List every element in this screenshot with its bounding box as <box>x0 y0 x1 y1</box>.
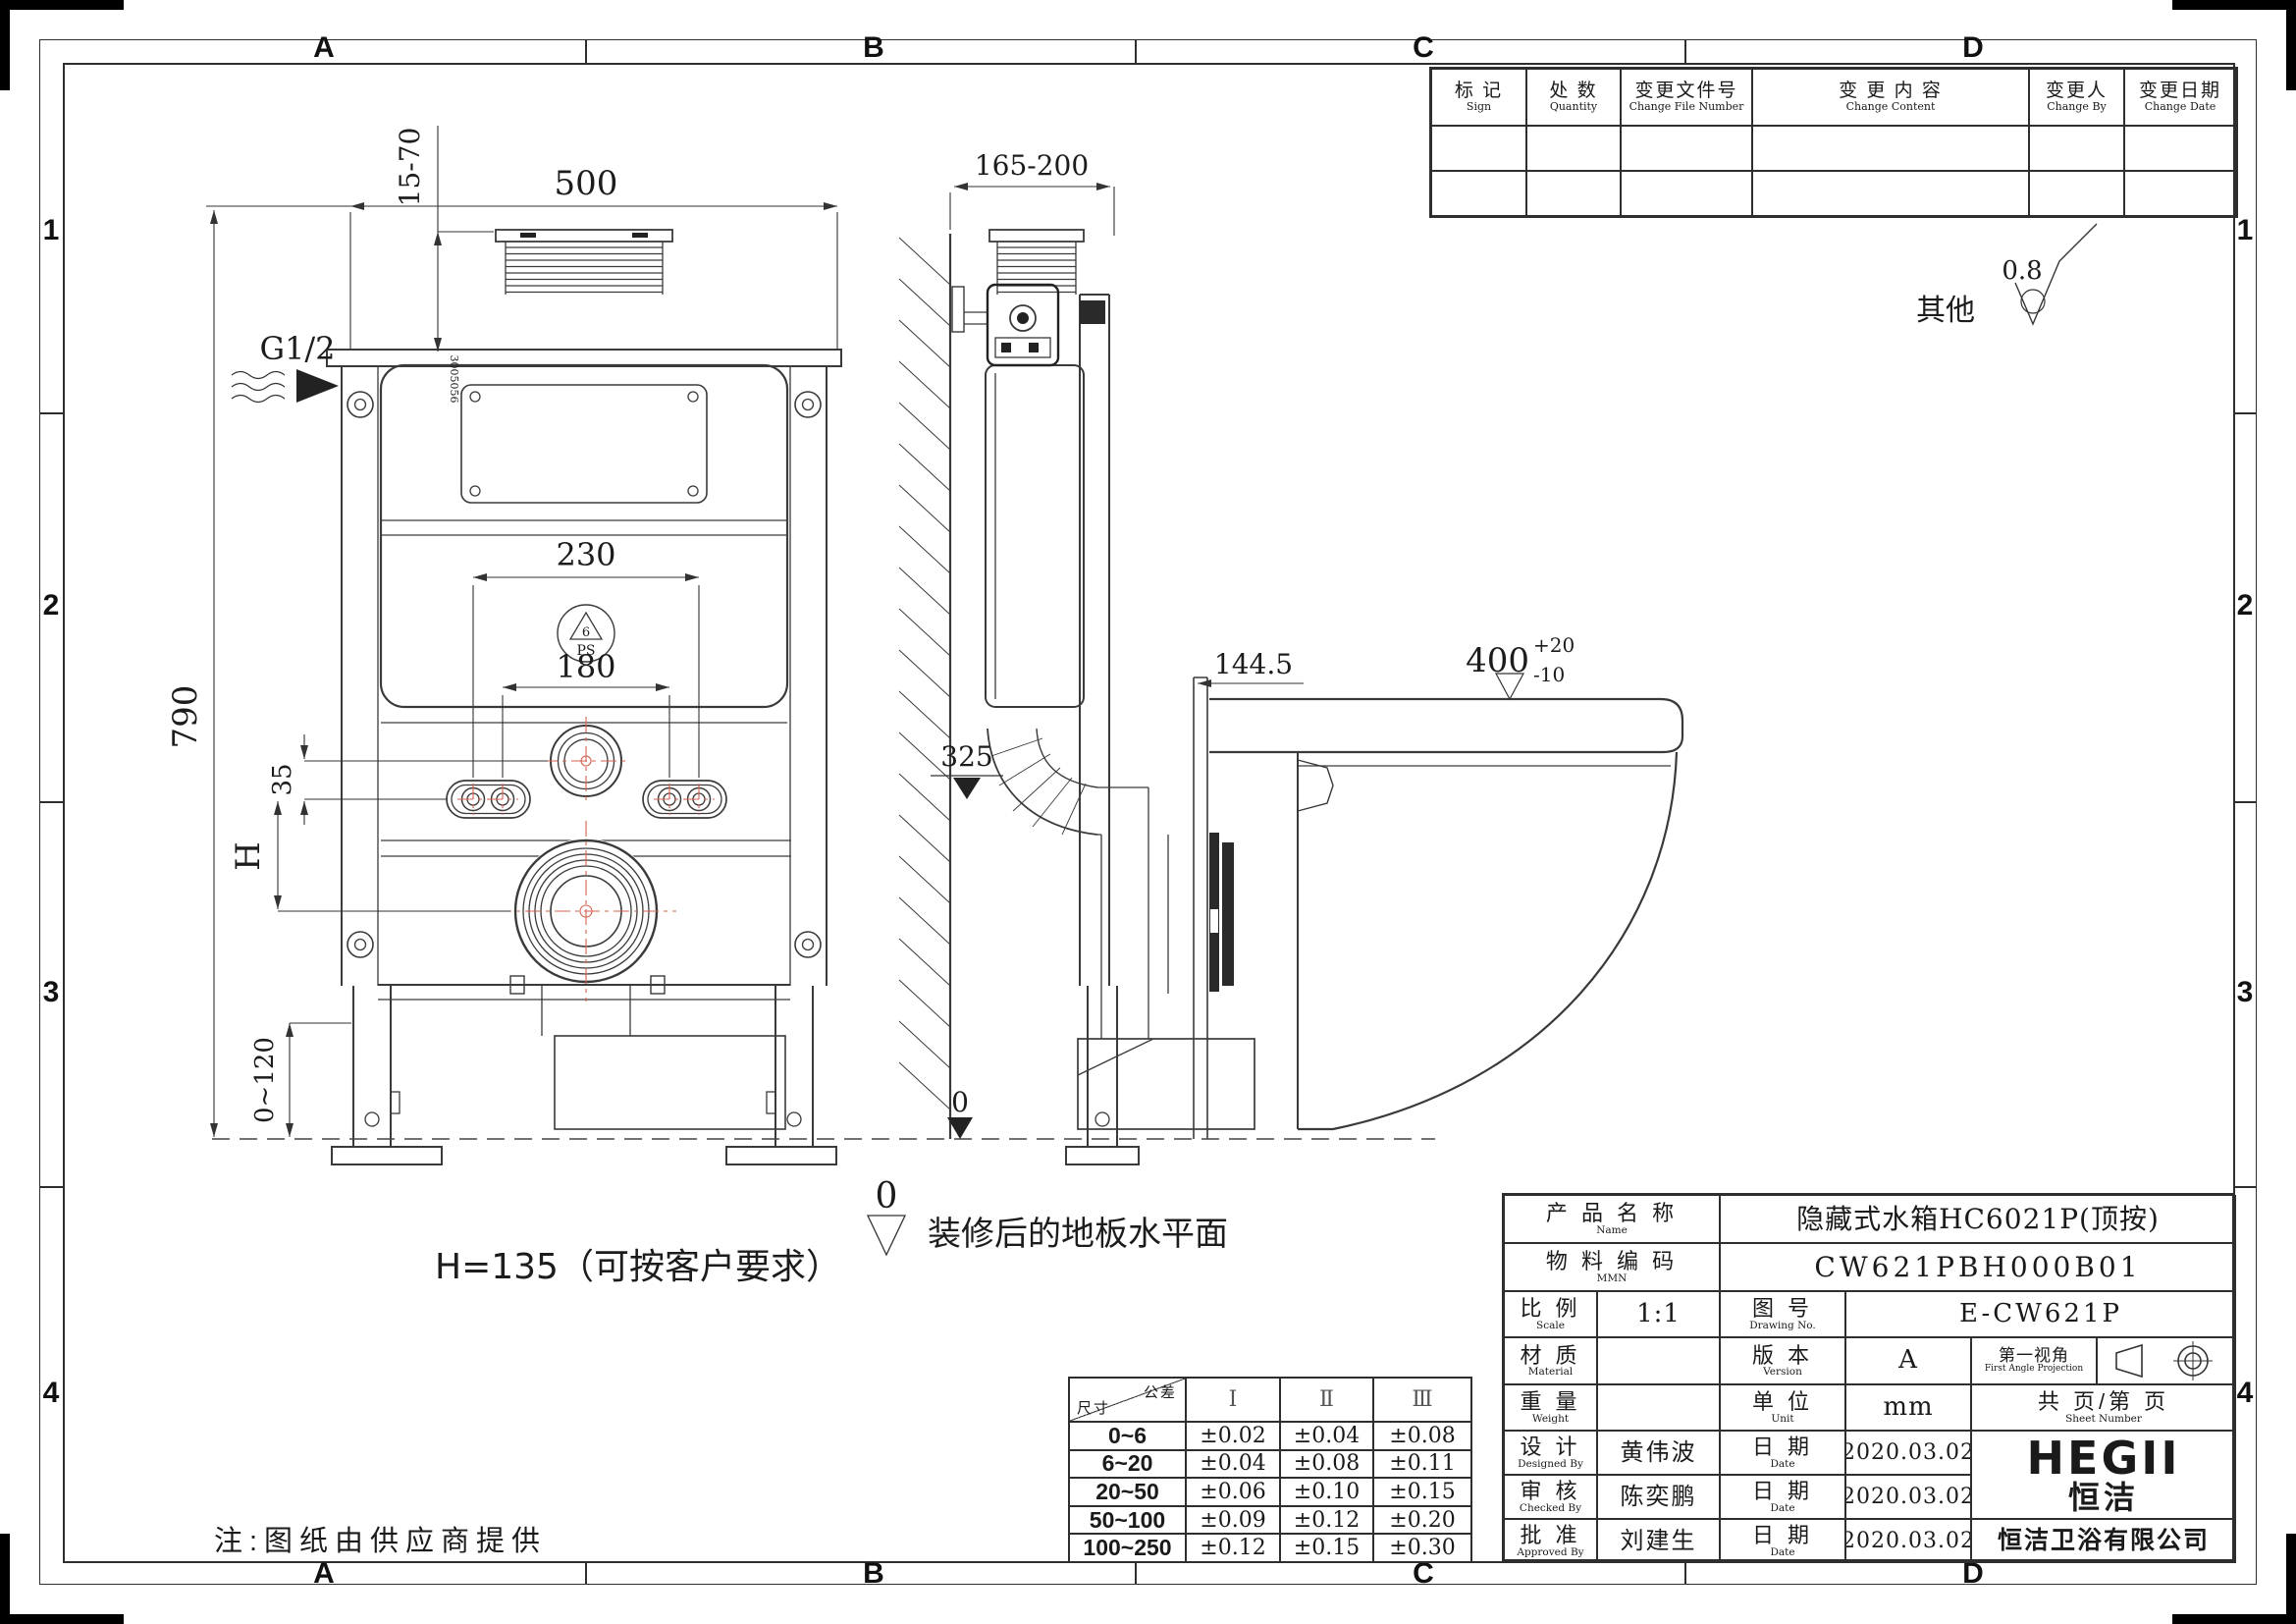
dim-0-120: 0~120 <box>250 1037 280 1123</box>
hegii-logo: HEGII 恒洁 <box>1971 1431 2236 1519</box>
revision-cell <box>2124 171 2236 216</box>
dim-g12: G1/2 <box>259 330 335 367</box>
tolerance-value: ±0.30 <box>1373 1534 1471 1562</box>
tolerance-corner-cell: 公差 尺寸 <box>1069 1378 1186 1422</box>
tolerance-range: 100~250 <box>1069 1534 1186 1562</box>
value-designer: 黄伟波 <box>1597 1431 1720 1475</box>
tolerance-value: ±0.15 <box>1373 1478 1471 1506</box>
dim-230: 230 <box>556 536 615 573</box>
tolerance-range: 50~100 <box>1069 1506 1186 1535</box>
revision-cell <box>1621 126 1752 171</box>
label-date: 日 期Date <box>1720 1475 1845 1519</box>
label-version: 版 本Version <box>1720 1337 1845 1384</box>
dim-165-200: 165-200 <box>975 149 1089 182</box>
revision-cell <box>1526 126 1621 171</box>
revision-cell <box>2124 126 2236 171</box>
tolerance-value: ±0.12 <box>1186 1534 1280 1562</box>
value-approver: 刘建生 <box>1597 1519 1720 1563</box>
note-h135: H=135（可按客户要求） <box>435 1247 841 1287</box>
revision-header-sign: 标 记Sign <box>1431 69 1526 126</box>
label-scale: 比 例Scale <box>1504 1291 1597 1337</box>
logo-text-cn: 恒洁 <box>2068 1482 2139 1515</box>
label-mmn: 物 料 编 码MMN <box>1504 1243 1720 1291</box>
revision-cell <box>2029 171 2124 216</box>
dim-15-70: 15-70 <box>394 128 426 207</box>
revision-header-by: 变更人Change By <box>2029 69 2124 126</box>
label-date: 日 期Date <box>1720 1519 1845 1563</box>
tolerance-value: ±0.08 <box>1280 1450 1373 1479</box>
value-approve-date: 2020.03.02 <box>1845 1519 1971 1563</box>
label-product-name: 产 品 名 称Name <box>1504 1195 1720 1243</box>
label-date: 日 期Date <box>1720 1431 1845 1475</box>
revision-cell <box>1431 126 1526 171</box>
label-drawing-no: 图 号Drawing No. <box>1720 1291 1845 1337</box>
label-material: 材 质Material <box>1504 1337 1597 1384</box>
dim-325: 325 <box>940 740 992 773</box>
value-weight <box>1597 1384 1720 1431</box>
value-design-date: 2020.03.02 <box>1845 1431 1971 1475</box>
revision-cell <box>1431 171 1526 216</box>
supplier-note: 注:图纸由供应商提供 <box>214 1518 547 1559</box>
front-view <box>327 230 841 1164</box>
dim-400-minus: -10 <box>1533 663 1565 686</box>
tolerance-value: ±0.20 <box>1373 1506 1471 1535</box>
tolerance-value: ±0.15 <box>1280 1534 1373 1562</box>
dim-h: H <box>229 841 268 871</box>
ps-symbol-num: 6 <box>582 625 590 640</box>
tolerance-col-1: Ⅰ <box>1186 1378 1280 1422</box>
tolerance-table: 公差 尺寸 Ⅰ Ⅱ Ⅲ 0~6 ±0.02 ±0.04 ±0.08 6~20 ±… <box>1068 1377 1472 1563</box>
tolerance-value: ±0.09 <box>1186 1506 1280 1535</box>
revision-header-content: 变 更 内 容Change Content <box>1752 69 2029 126</box>
side-view <box>899 230 1682 1164</box>
ps-symbol-label: PS <box>576 643 595 659</box>
revision-cell <box>2029 126 2124 171</box>
dim-500: 500 <box>555 164 618 203</box>
dim-0-floor: 0 <box>951 1086 969 1118</box>
part-number: 3005056 <box>448 355 460 404</box>
revision-cell <box>1526 171 1621 216</box>
value-checker: 陈奕鹏 <box>1597 1475 1720 1519</box>
value-version: A <box>1845 1337 1971 1384</box>
datum-symbols <box>232 290 2045 1255</box>
projection-symbol <box>2097 1337 2236 1384</box>
dim-400: 400 <box>1466 641 1529 680</box>
surface-finish-value: 0.8 <box>2002 256 2042 286</box>
tolerance-value: ±0.08 <box>1373 1422 1471 1450</box>
revision-cell <box>1621 171 1752 216</box>
tolerance-value: ±0.04 <box>1280 1422 1373 1450</box>
datum-0-label: 0 <box>876 1176 898 1217</box>
dim-790: 790 <box>166 685 205 749</box>
revision-table: 标 记Sign 处 数Quantity 变更文件号Change File Num… <box>1429 67 2238 218</box>
note-floor-level: 装修后的地板水平面 <box>928 1215 1228 1254</box>
value-scale: 1:1 <box>1597 1291 1720 1337</box>
company-name: 恒洁卫浴有限公司 <box>1971 1519 2236 1563</box>
title-block: 产 品 名 称Name 隐藏式水箱HC6021P(顶按) 物 料 编 码MMN … <box>1502 1193 2234 1561</box>
tolerance-value: ±0.11 <box>1373 1450 1471 1479</box>
tolerance-value: ±0.02 <box>1186 1422 1280 1450</box>
tolerance-value: ±0.12 <box>1280 1506 1373 1535</box>
tolerance-value: ±0.10 <box>1280 1478 1373 1506</box>
label-projection: 第一视角First Angle Projection <box>1971 1337 2097 1384</box>
surface-finish-scope: 其他 <box>1916 294 1975 328</box>
revision-header-date: 变更日期Change Date <box>2124 69 2236 126</box>
dim-144-5: 144.5 <box>1214 648 1293 680</box>
tolerance-range: 0~6 <box>1069 1422 1186 1450</box>
value-material <box>1597 1337 1720 1384</box>
tolerance-value: ±0.06 <box>1186 1478 1280 1506</box>
engineering-drawing-page: { "colors": {"line":"#3a3a3a","centerlin… <box>0 0 2296 1624</box>
revision-header-quantity: 处 数Quantity <box>1526 69 1621 126</box>
label-designed-by: 设 计Designed By <box>1504 1431 1597 1475</box>
value-unit: mm <box>1845 1384 1971 1431</box>
label-weight: 重 量Weight <box>1504 1384 1597 1431</box>
tolerance-col-2: Ⅱ <box>1280 1378 1373 1422</box>
label-unit: 单 位Unit <box>1720 1384 1845 1431</box>
value-drawing-no: E-CW621P <box>1845 1291 2236 1337</box>
tolerance-value: ±0.04 <box>1186 1450 1280 1479</box>
tolerance-range: 6~20 <box>1069 1450 1186 1479</box>
revision-header-file: 变更文件号Change File Number <box>1621 69 1752 126</box>
tolerance-col-3: Ⅲ <box>1373 1378 1471 1422</box>
value-mmn: CW621PBH000B01 <box>1720 1243 2236 1291</box>
revision-cell <box>1752 126 2029 171</box>
label-approved-by: 批 准Approved By <box>1504 1519 1597 1563</box>
first-angle-projection-icon <box>2103 1340 2230 1381</box>
value-product-name: 隐藏式水箱HC6021P(顶按) <box>1720 1195 2236 1243</box>
value-check-date: 2020.03.02 <box>1845 1475 1971 1519</box>
logo-text-en: HEGII <box>2027 1435 2181 1482</box>
dim-35: 35 <box>268 763 297 795</box>
dim-400-plus: +20 <box>1533 633 1575 657</box>
label-checked-by: 审 核Checked By <box>1504 1475 1597 1519</box>
tolerance-range: 20~50 <box>1069 1478 1186 1506</box>
revision-cell <box>1752 171 2029 216</box>
label-sheet-number: 共 页/第 页Sheet Number <box>1971 1384 2236 1431</box>
